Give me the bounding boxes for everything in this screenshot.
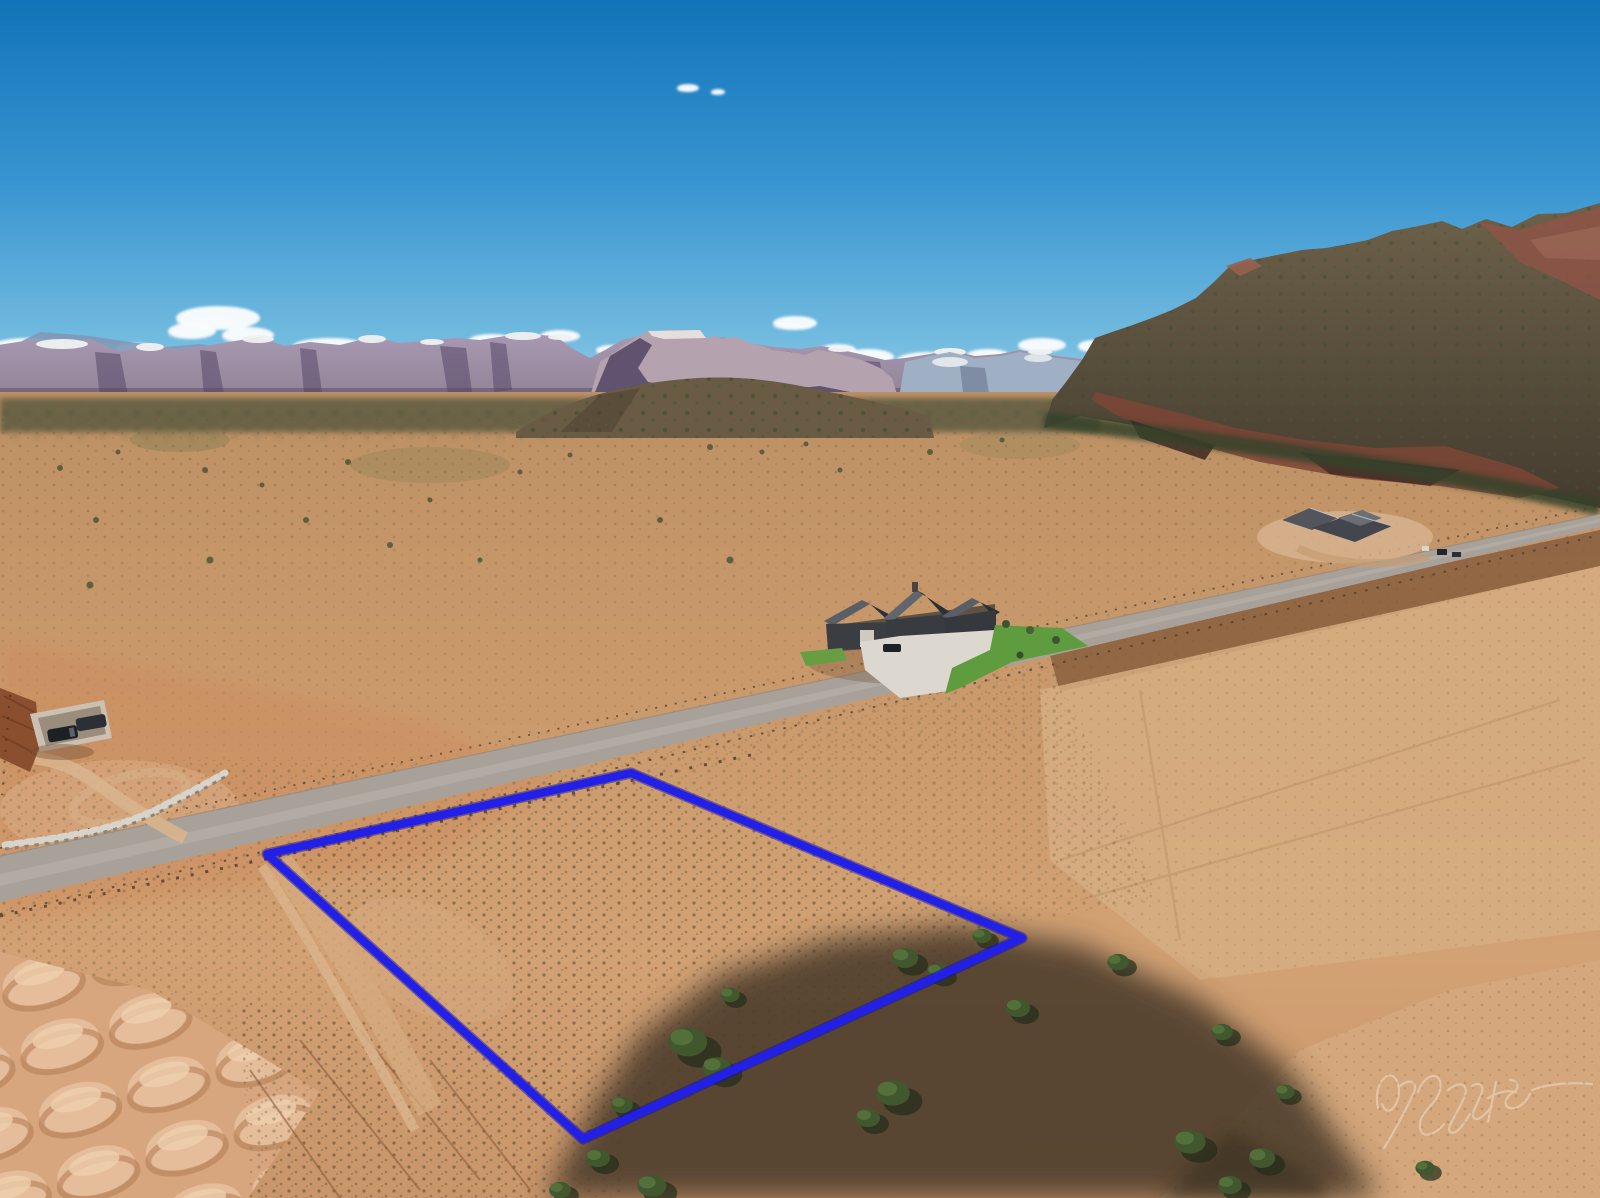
- aerial-photo: [0, 0, 1600, 1198]
- parked-car: [883, 644, 901, 652]
